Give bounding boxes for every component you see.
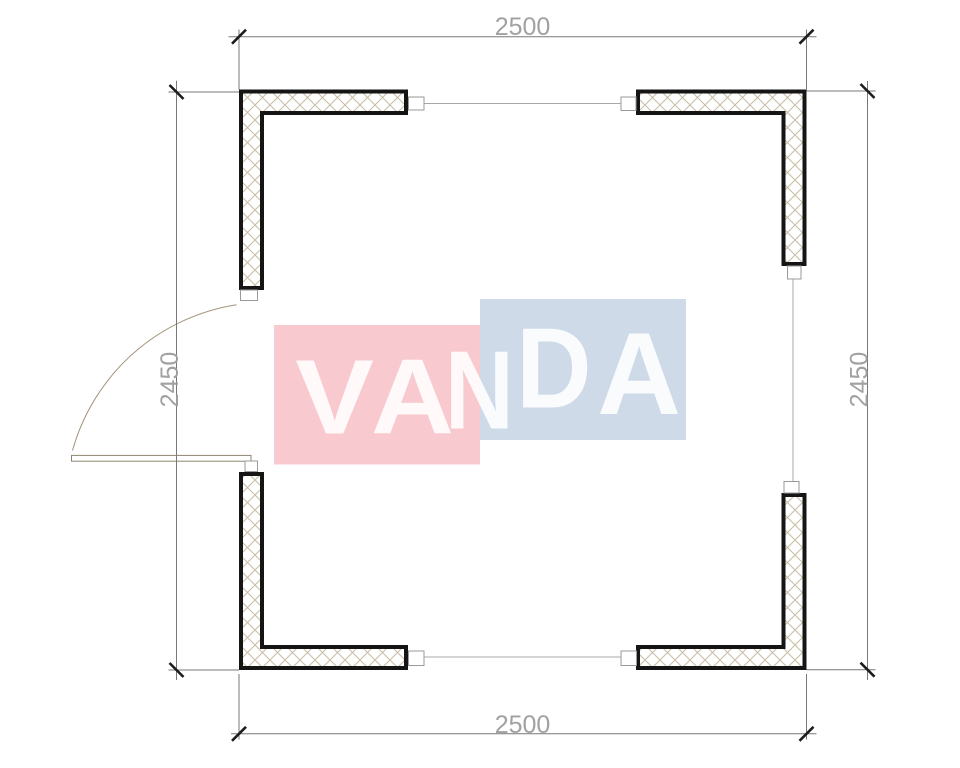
svg-text:2450: 2450	[156, 352, 184, 408]
svg-text:2450: 2450	[846, 352, 874, 408]
svg-text:V: V	[295, 338, 374, 456]
svg-text:A: A	[371, 336, 454, 456]
svg-text:2500: 2500	[495, 711, 551, 739]
svg-text:A: A	[597, 308, 681, 440]
svg-text:N: N	[445, 328, 514, 452]
svg-text:D: D	[516, 305, 591, 432]
svg-text:2500: 2500	[495, 13, 551, 41]
